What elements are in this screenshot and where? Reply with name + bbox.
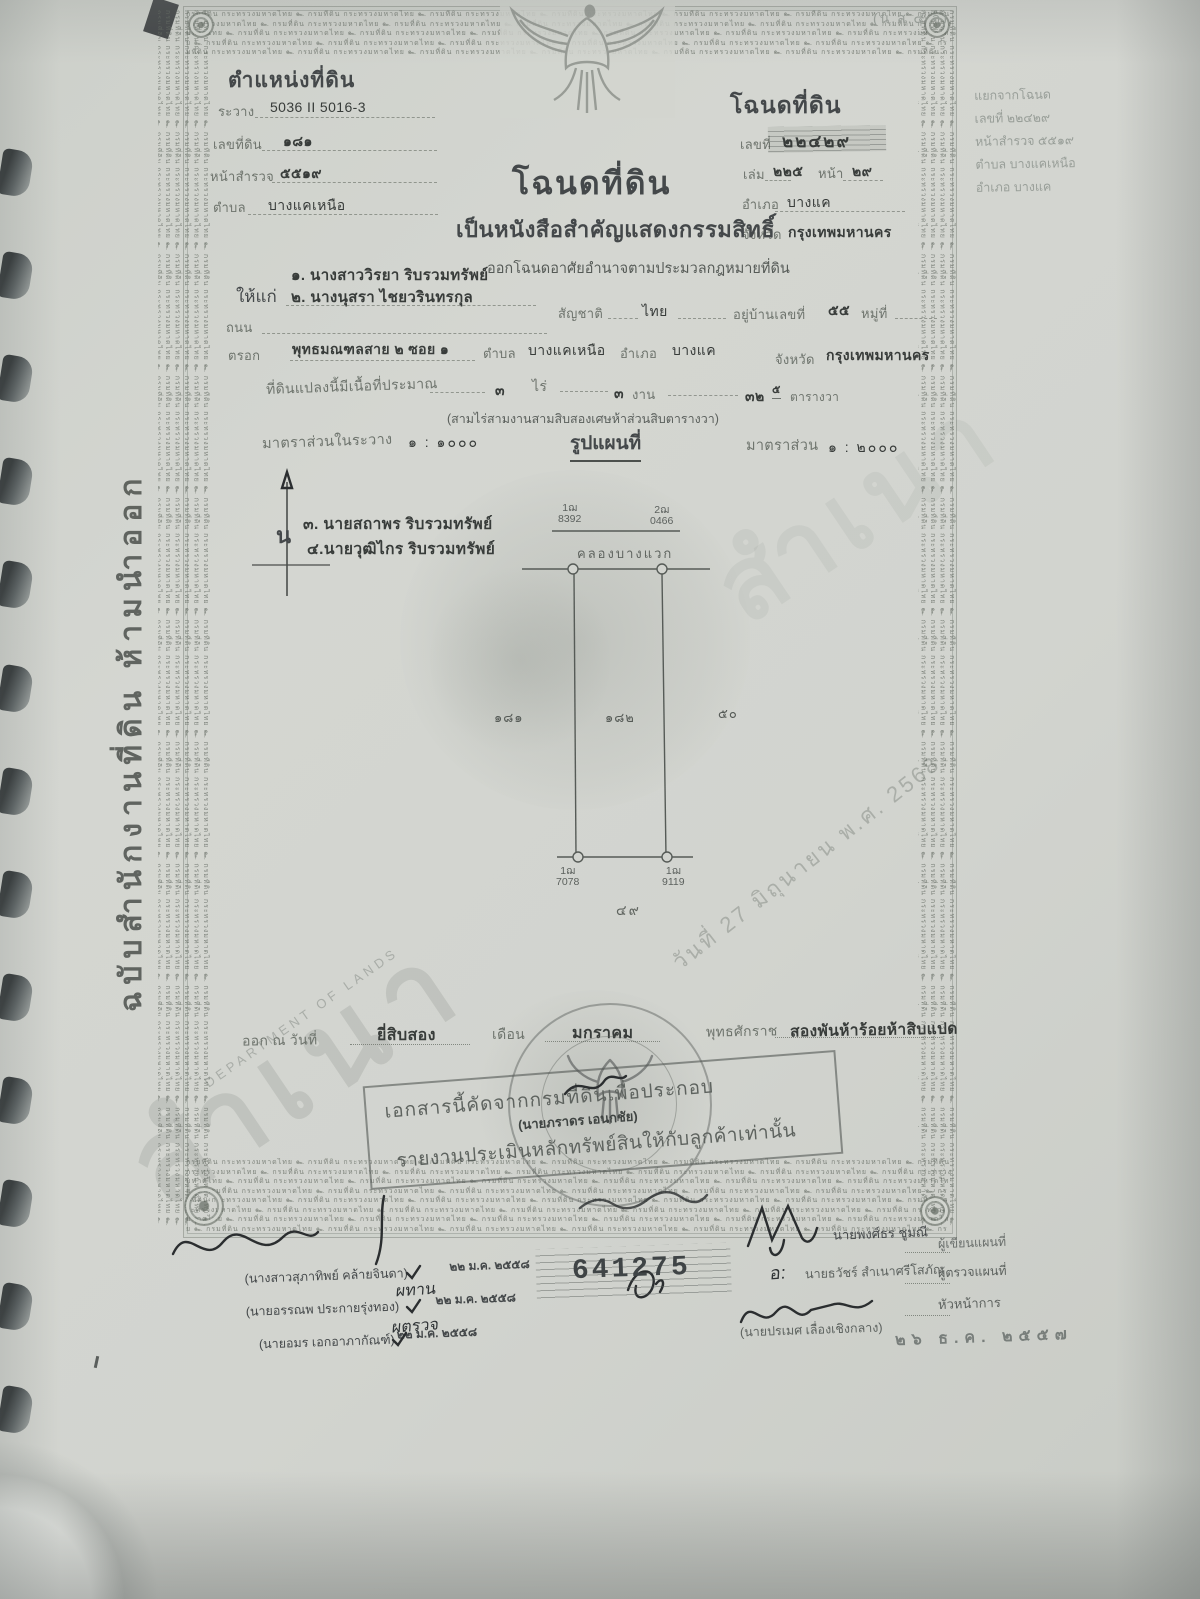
soi-value: พุทธมณฑลสาย ๒ ซอย ๑ bbox=[292, 339, 449, 361]
scale-out-label: มาตราส่วน bbox=[746, 434, 818, 457]
deed-number-label: เลขที่ bbox=[740, 134, 771, 155]
area-wa-value: ๓๒ bbox=[745, 386, 765, 408]
binding-ring bbox=[0, 870, 34, 920]
margin-office-copy-text: ฉบับสำนักงานที่ดิน ห้ามนำออก bbox=[108, 352, 155, 1012]
microtext-band-left: กรมที่ดิน กระทรวงมหาดไทย ๛ กรมที่ดิน กระ… bbox=[158, 10, 210, 1232]
area-rai-value: ๓ bbox=[495, 380, 505, 402]
side-note-line1: แยกจากโฉนด bbox=[974, 83, 1075, 108]
check-tick-3 bbox=[390, 1330, 410, 1348]
deed-number-value: ๒๒๔๒๙ bbox=[782, 128, 851, 155]
plot-number-right: ๕๐ bbox=[718, 703, 738, 724]
corner-rosette bbox=[188, 12, 214, 38]
garuda-emblem bbox=[500, 0, 675, 118]
issue-month-label: เดือน bbox=[492, 1024, 525, 1046]
boundary-marker-top-right: 2ฌ0466 bbox=[650, 505, 673, 527]
marker-number: 9119 bbox=[662, 877, 685, 888]
checker-date-2: ๒๒ ม.ค. ๒๕๕๘ bbox=[435, 1288, 516, 1310]
side-note-line2: เลขที่ ๒๒๔๒๙ bbox=[974, 106, 1075, 131]
binding-ring bbox=[0, 560, 34, 610]
scale-in-value: ๑ : ๑๐๐๐ bbox=[408, 432, 479, 454]
issue-prefix: ออก ณ วันที่ bbox=[242, 1029, 318, 1052]
binding-ring bbox=[0, 767, 34, 817]
chief-name: (นายปรเมศ เลื่องเชิงกลาง) bbox=[740, 1318, 883, 1343]
map-inspector-name: นายธวัชร์ สำเนาศรีโสภัณ bbox=[805, 1260, 945, 1285]
map-figure-title: รูปแผนที่ bbox=[570, 428, 641, 462]
binding-ring bbox=[0, 664, 34, 714]
grantee-amphoe-label: อำเภอ bbox=[620, 343, 657, 364]
side-note-line3: หน้าสำรวจ ๕๕๑๙ bbox=[975, 129, 1076, 154]
binding-ring bbox=[0, 148, 34, 198]
marker-number: 7078 bbox=[556, 877, 579, 888]
house-no-value: ๕๕ bbox=[828, 300, 850, 322]
marker-number: 0466 bbox=[650, 516, 673, 527]
scanned-land-title-photo: สำเนา สำเนา วันที่ 27 มิถุนายน พ.ศ. 2568… bbox=[0, 0, 1200, 1599]
check-tick-1 bbox=[404, 1263, 424, 1281]
binding-ring bbox=[0, 354, 34, 404]
area-rai-unit: ไร่ bbox=[532, 376, 547, 398]
cartographer-role: ผู้เขียนแผนที่ bbox=[938, 1232, 1007, 1254]
side-note-stamp: แยกจากโฉนด เลขที่ ๒๒๔๒๙ หน้าสำรวจ ๕๕๑๙ ต… bbox=[974, 83, 1076, 200]
grantee-label: ให้แก่ bbox=[236, 283, 277, 310]
handwritten-note-scribble bbox=[575, 1186, 715, 1216]
grantee-province-value: กรุงเทพมหานคร bbox=[826, 345, 930, 367]
adjacent-owner-3: ๓. นายสถาพร ริบรวมทรัพย์ bbox=[303, 511, 493, 536]
marker-number: 8392 bbox=[558, 514, 581, 525]
grantee-amphoe-value: บางแค bbox=[672, 340, 716, 362]
header-tambon-label: ตำบล bbox=[213, 197, 246, 218]
checker-date-1: ๒๒ ม.ค. ๒๕๕๘ bbox=[449, 1255, 530, 1277]
ravang-label: ระวาง bbox=[218, 101, 254, 122]
nationality-label: สัญชาติ bbox=[558, 303, 603, 324]
cartographer-signature bbox=[742, 1198, 822, 1260]
deed-main-title: โฉนดที่ดิน bbox=[512, 158, 671, 209]
land-position-title: ตำแหน่งที่ดิน bbox=[228, 64, 355, 97]
side-note-line5: อำเภอ บางแค bbox=[976, 175, 1077, 200]
deed-subtitle: เป็นหนังสือสำคัญแสดงกรรมสิทธิ์ bbox=[456, 212, 775, 247]
binding-ring bbox=[0, 1282, 34, 1332]
area-in-words: (สามไร่สามงานสามสิบสองเศษห้าส่วนสิบตาราง… bbox=[447, 409, 719, 429]
boundary-marker-bottom-left: 1ฌ7078 bbox=[556, 866, 579, 888]
checker-name-3: (นายอมร เอกอาภากัณฑ์) bbox=[259, 1333, 395, 1352]
check-tick-2 bbox=[404, 1297, 424, 1315]
north-letter: น bbox=[276, 518, 291, 553]
checker-name-2: (นายอรรณพ ประกายรุ่งทอง) bbox=[246, 1300, 400, 1319]
received-date-stamp: ๒๖ ธ.ค. ๒๕๕๗ bbox=[895, 1322, 1074, 1353]
binding-ring bbox=[0, 1076, 34, 1126]
cartographer-row: นายพงศ์ธร ชูมณี bbox=[833, 1221, 929, 1245]
area-ngan-value: ๓ bbox=[614, 383, 624, 405]
scale-in-label: มาตราส่วนในระวาง bbox=[262, 428, 393, 456]
road-label: ถนน bbox=[226, 317, 253, 338]
microtext-band-right: กรมที่ดิน กระทรวงมหาดไทย ๛ กรมที่ดิน กระ… bbox=[918, 10, 956, 1232]
issue-era-label: พุทธศักราช bbox=[706, 1020, 778, 1043]
grantee-province-label: จังหวัด bbox=[775, 349, 815, 370]
binding-ring bbox=[0, 251, 34, 301]
area-wa-unit: ตารางวา bbox=[790, 388, 839, 407]
moo-label: หมู่ที่ bbox=[861, 303, 888, 324]
area-ngan-unit: งาน bbox=[632, 384, 655, 405]
scale-out-value: ๑ : ๒๐๐๐ bbox=[828, 437, 899, 459]
ravang-value: 5036 II 5016-3 bbox=[270, 99, 366, 115]
deed-title-small: โฉนดที่ดิน bbox=[730, 88, 842, 124]
plot-number-center: ๑๘๒ bbox=[605, 707, 635, 728]
chief-role: หัวหน้าการ bbox=[938, 1292, 1001, 1315]
checker-name-1: (นางสาวสุภาทิพย์ คล้ายจินดา) bbox=[244, 1266, 408, 1286]
serial-number: 641275 bbox=[571, 1252, 691, 1287]
area-wa-fraction: ๕ bbox=[772, 380, 781, 399]
nationality-value: ไทย bbox=[642, 301, 668, 323]
checker-row: (นายอมร เอกอาภากัณฑ์) ๒๒ ม.ค. ๒๕๕๘ bbox=[247, 1329, 411, 1368]
form-code-tag: (น.ส.๔ จ) bbox=[873, 8, 949, 30]
boundary-marker-top-left: 1ฌ8392 bbox=[558, 503, 581, 525]
plot-number-left: ๑๘๑ bbox=[494, 707, 524, 728]
page-label: หน้า bbox=[818, 163, 844, 184]
soi-label: ตรอก bbox=[228, 345, 260, 366]
header-province-value: กรุงเทพมหานคร bbox=[788, 222, 892, 244]
binding-ring bbox=[0, 1385, 34, 1435]
deed-legal-line: ออกโฉนดอาศัยอำนาจตามประมวลกฎหมายที่ดิน bbox=[487, 257, 790, 280]
book-label: เล่ม bbox=[743, 164, 765, 185]
page-curl bbox=[0, 1430, 170, 1599]
house-no-label: อยู่บ้านเลขที่ bbox=[733, 304, 805, 325]
grantee-name-1: ๑. นางสาววิรยา ริบรวมทรัพย์ bbox=[291, 263, 488, 287]
seal-signature-scribble bbox=[560, 1070, 630, 1105]
binding-ring bbox=[0, 1179, 34, 1229]
binding-ring bbox=[0, 973, 34, 1023]
issue-year: สองพันห้าร้อยห้าสิบแปด bbox=[790, 1016, 958, 1044]
side-note-line4: ตำบล บางแคเหนือ bbox=[975, 152, 1076, 177]
canal-label: คลองบางแวก bbox=[577, 543, 673, 564]
handwritten-initial-right: อ: bbox=[769, 1257, 787, 1287]
ink-mark bbox=[94, 1356, 99, 1368]
cartographer-name: นายพงศ์ธร ชูมณี bbox=[833, 1224, 928, 1242]
land-number-label: เลขที่ดิน bbox=[213, 134, 262, 155]
checker-rows: (นางสาวสุภาทิพย์ คล้ายจินดา) ๒๒ ม.ค. ๒๕๕… bbox=[244, 1263, 411, 1368]
adjacent-owner-4: ๔.นายวุฒิไกร ริบรวมทรัพย์ bbox=[307, 536, 495, 561]
boundary-marker-bottom-right: 1ฌ9119 bbox=[662, 866, 685, 888]
grantee-tambon-label: ตำบล bbox=[483, 343, 516, 364]
survey-page-label: หน้าสำรวจ bbox=[210, 166, 274, 187]
map-inspector-role: ผู้ตรวจแผนที่ bbox=[938, 1261, 1007, 1283]
baseline-number: ๔๙ bbox=[616, 900, 641, 922]
pen-stroke bbox=[370, 1192, 394, 1270]
grantee-tambon-value: บางแคเหนือ bbox=[528, 340, 606, 362]
binding-ring bbox=[0, 457, 34, 507]
